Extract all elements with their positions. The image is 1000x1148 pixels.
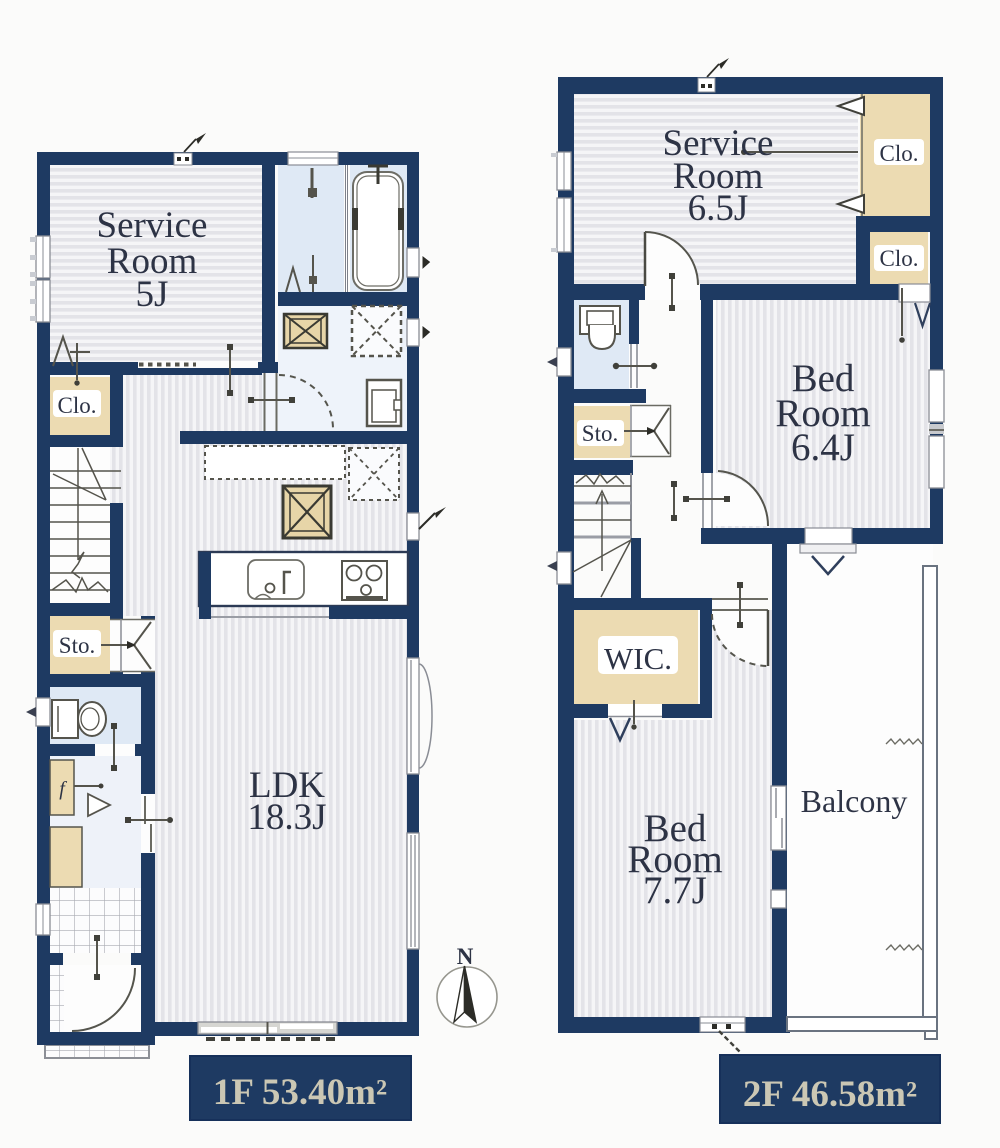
- svg-text:Clo.: Clo.: [58, 393, 97, 418]
- svg-text:6.5J: 6.5J: [688, 188, 749, 229]
- svg-text:Balcony: Balcony: [801, 783, 908, 819]
- svg-text:Service: Service: [97, 205, 208, 246]
- svg-text:1F 53.40m²: 1F 53.40m²: [213, 1072, 387, 1113]
- svg-text:WIC.: WIC.: [604, 641, 672, 676]
- svg-text:5J: 5J: [136, 274, 169, 315]
- svg-text:18.3J: 18.3J: [247, 797, 326, 838]
- svg-text:N: N: [457, 944, 474, 969]
- svg-text:7.7J: 7.7J: [643, 869, 707, 912]
- svg-text:6.4J: 6.4J: [791, 426, 855, 469]
- svg-text:Clo.: Clo.: [880, 246, 919, 271]
- svg-text:Clo.: Clo.: [880, 141, 919, 166]
- svg-text:2F 46.58m²: 2F 46.58m²: [743, 1074, 917, 1115]
- svg-text:Sto.: Sto.: [59, 633, 95, 658]
- svg-text:Sto.: Sto.: [582, 421, 618, 446]
